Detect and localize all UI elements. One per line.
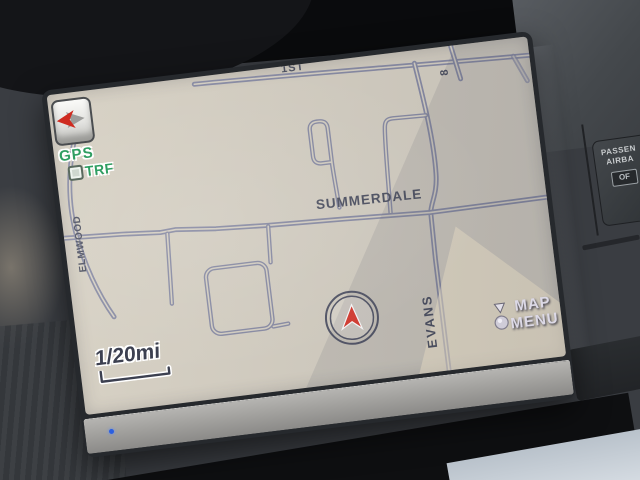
bezel-groove [582,235,640,251]
traffic-icon [67,164,84,181]
dashboard-photo: PASSEN AIRBA OF [0,0,640,480]
blue-speck [109,429,115,435]
airbag-off-indicator: OF [611,169,639,187]
gps-status-badge: GPS TRF [48,94,114,182]
vehicle-position-icon [325,291,379,345]
nav-display-panel: 1ST 8 SUMMERDALE EVANS ELMWOOD [41,31,576,458]
passenger-airbag-plate: PASSEN AIRBA OF [591,133,640,227]
compass-icon [50,96,95,147]
street-label-elmwood: ELMWOOD [72,215,90,273]
street-label-8: 8 [438,69,451,77]
nav-screen: 1ST 8 SUMMERDALE EVANS ELMWOOD [47,36,567,415]
